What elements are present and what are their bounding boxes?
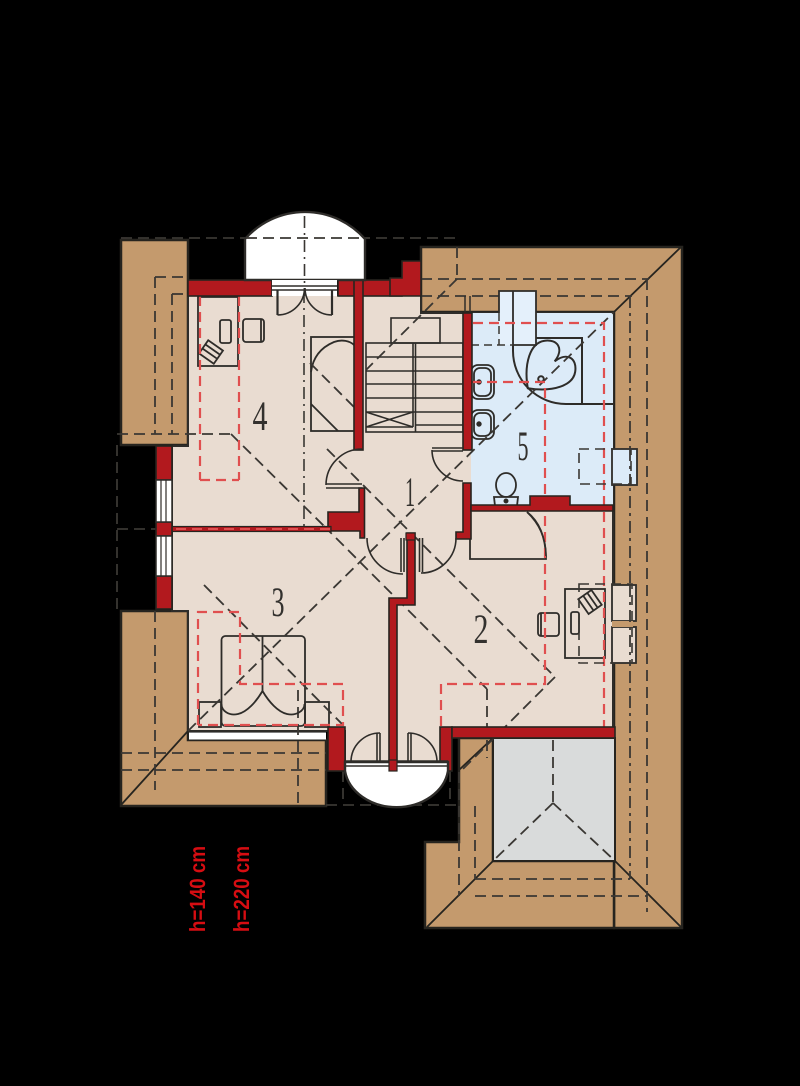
svg-text:3: 3	[272, 580, 285, 626]
svg-text:h=220 cm: h=220 cm	[229, 846, 254, 932]
svg-text:1: 1	[405, 470, 415, 516]
svg-text:4: 4	[253, 394, 268, 440]
svg-text:5: 5	[518, 424, 529, 470]
svg-text:h=140 cm: h=140 cm	[185, 846, 210, 932]
svg-text:2: 2	[474, 607, 489, 653]
